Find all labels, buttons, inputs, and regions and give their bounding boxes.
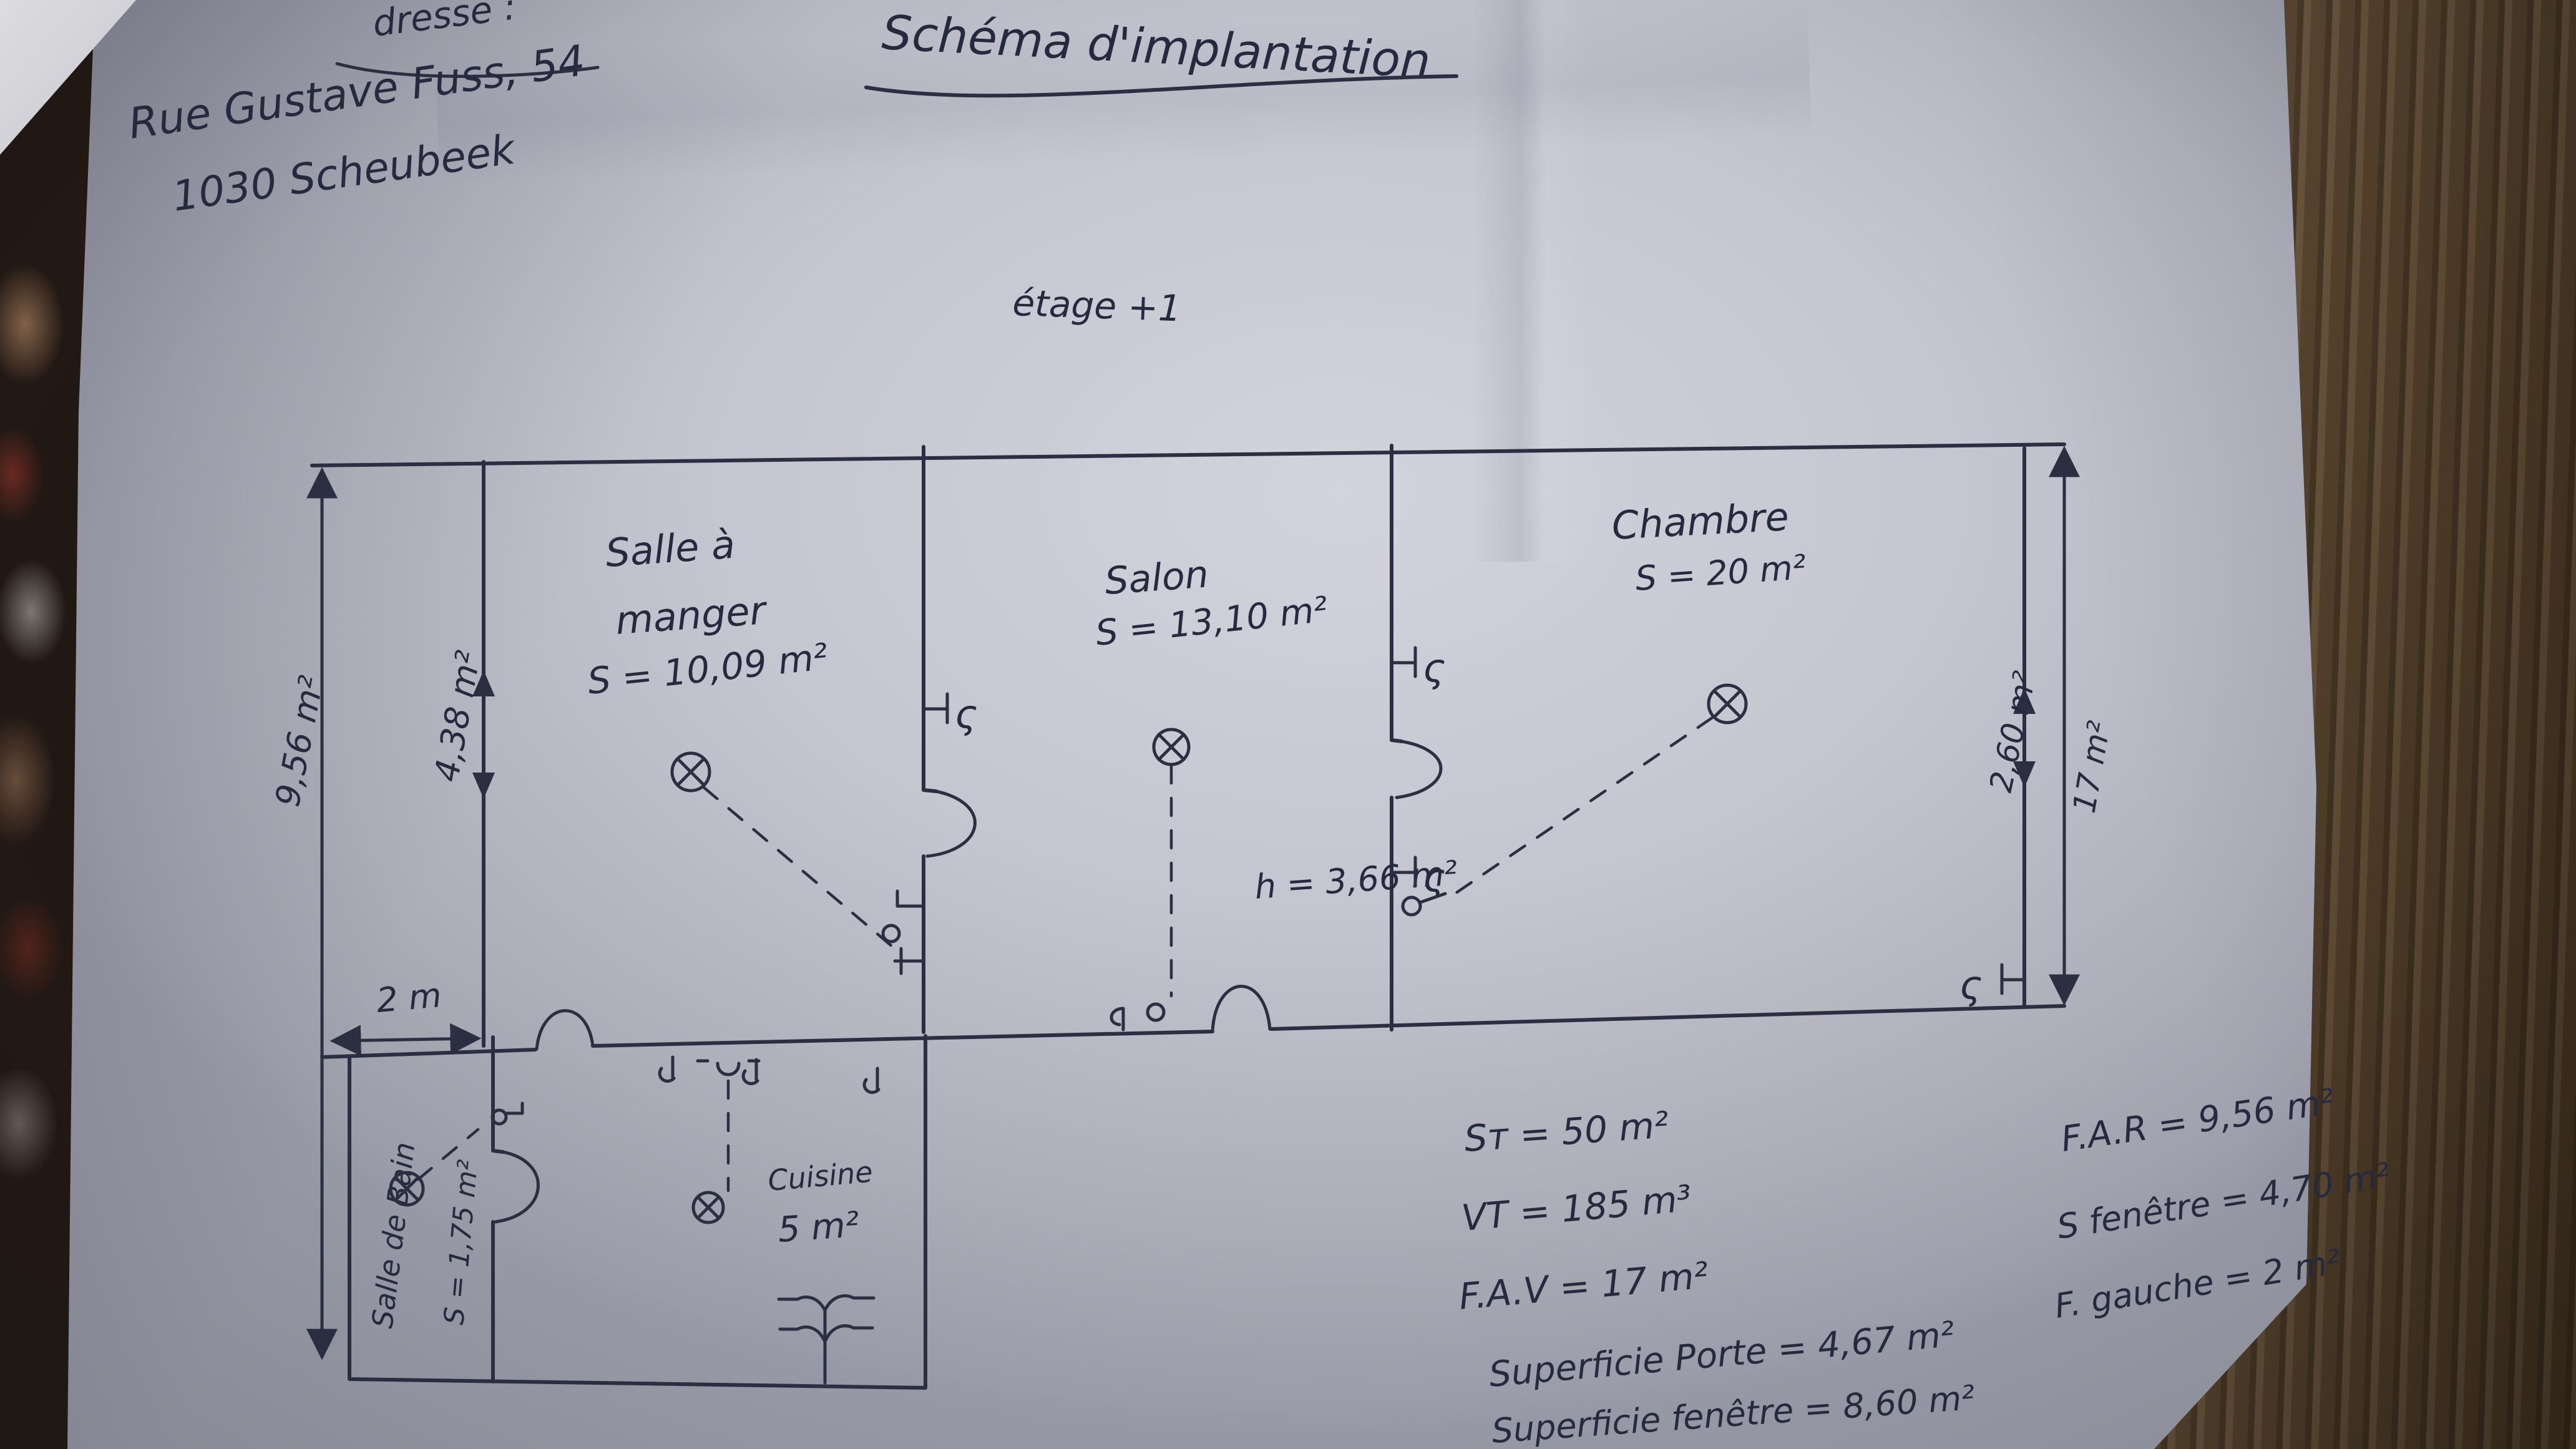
summary-line: F.A.V = 17 m² (1457, 1254, 1710, 1318)
door-arc (1397, 741, 1441, 798)
dimension-label-window-right: 2,60 m² (1983, 668, 2043, 796)
pendant-light-icon (698, 1061, 759, 1075)
address-city: 1030 Scheubeek (170, 125, 520, 221)
dimension-label-bath-width: 2 m (375, 975, 443, 1020)
dimension-line-bath-width (334, 1038, 477, 1041)
ceiling-light-icon (672, 753, 710, 791)
ceiling-light-icon (1154, 729, 1189, 764)
header-block: dresse : Rue Gustave Fuss, 54 1030 Scheu… (125, 0, 1456, 329)
door-arc (537, 1011, 593, 1049)
outlet-icon (660, 1057, 674, 1081)
ceiling-light-icon (693, 1193, 723, 1222)
wall-bottom (322, 1050, 535, 1057)
svg-text:ς: ς (1959, 962, 1982, 1008)
wall-bottom (593, 1032, 1212, 1046)
switch-icon: ς (924, 691, 977, 737)
ceiling-light-icon (1709, 685, 1746, 723)
floor-label: étage +1 (1012, 281, 1183, 329)
address-label: dresse : (370, 0, 518, 45)
room-area-bedroom: S = 20 m² (1634, 547, 1808, 598)
room-label-bathroom: Salle de Bain (365, 1140, 421, 1330)
summary-line: Sᴛ = 50 m² (1463, 1103, 1670, 1160)
room-label-dining: manger (614, 587, 769, 643)
wall-bath-kitchen (493, 1037, 503, 1152)
summary-line: S fenêtre = 4,70 m² (2054, 1155, 2393, 1247)
antenna-icon (779, 1296, 874, 1383)
outlet-icon (1111, 1004, 1164, 1030)
svg-text:ς: ς (955, 691, 977, 737)
summary-right-block: F.A.R = 9,56 m² S fenêtre = 4,70 m² F. g… (2052, 1081, 2393, 1326)
summary-center-block: Sᴛ = 50 m² VT = 185 m³ F.A.V = 17 m² Sup… (1457, 1103, 1976, 1449)
arrow-down-icon (472, 773, 495, 799)
outlet-icon (883, 891, 924, 942)
room-label-kitchen: Cuisine (766, 1154, 874, 1197)
wiring-line (704, 788, 896, 950)
wall-dining-living (924, 447, 936, 791)
wiring-line (1448, 718, 1712, 899)
dimension-label-front-facade: 17 m² (2066, 718, 2118, 816)
door-arc (495, 1152, 538, 1222)
page-title: Schéma d'implantation (881, 4, 1432, 89)
switch-icon: ς (1959, 962, 2024, 1008)
door-arc (927, 791, 975, 856)
title-underline (866, 76, 1456, 95)
door-arc (1212, 986, 1270, 1032)
switch-icon: ς (1392, 645, 1445, 691)
summary-line: F.A.R = 9,56 m² (2059, 1081, 2337, 1160)
dimension-label-inner-height: 4,38 m² (427, 648, 489, 784)
room-area-dining: S = 10,09 m² (585, 635, 830, 703)
outlet-icon (492, 1103, 522, 1124)
room-label-dining: Salle à (604, 522, 736, 576)
address-street: Rue Gustave Fuss, 54 (125, 36, 588, 149)
svg-text:ς: ς (1423, 645, 1445, 691)
room-area-kitchen: 5 m² (776, 1204, 861, 1251)
wall-living-bedroom (1392, 446, 1402, 741)
wall-top (312, 444, 2064, 466)
outlet-icon (864, 1068, 879, 1093)
outlet-icon (743, 1060, 758, 1084)
room-label-living: Salon (1103, 553, 1210, 603)
summary-line: Superficie Porte = 4,67 m² (1488, 1314, 1956, 1395)
outlet-icon (895, 949, 924, 973)
summary-line: F. gauche = 2 m² (2052, 1242, 2343, 1326)
summary-line: VT = 185 m³ (1460, 1177, 1693, 1239)
room-area-bathroom: S = 1,75 m² (438, 1158, 484, 1326)
photo-of-floor-plan: dresse : Rue Gustave Fuss, 54 1030 Scheu… (0, 0, 2576, 1449)
room-label-bedroom: Chambre (1611, 494, 1790, 549)
floor-plan-sketch: dresse : Rue Gustave Fuss, 54 1030 Scheu… (0, 0, 2576, 1449)
